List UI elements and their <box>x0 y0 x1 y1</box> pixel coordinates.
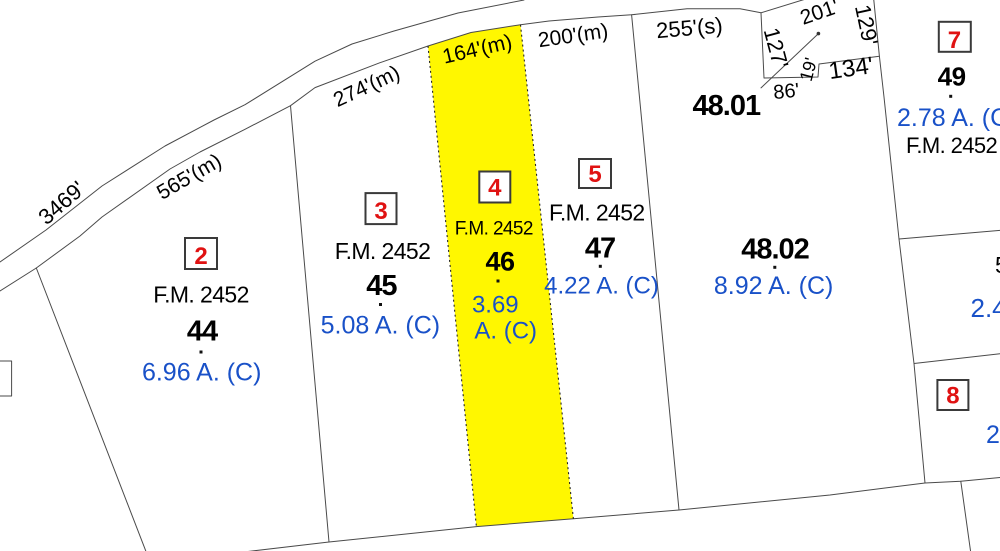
svg-text:5: 5 <box>995 252 1000 278</box>
svg-text:2.78 A. (C): 2.78 A. (C) <box>897 104 1000 132</box>
svg-text:48.01: 48.01 <box>693 90 761 122</box>
svg-text:6.96 A. (C): 6.96 A. (C) <box>142 359 262 387</box>
svg-text:F.M. 2452: F.M. 2452 <box>906 133 998 158</box>
svg-text:F.M. 2452: F.M. 2452 <box>455 218 533 239</box>
svg-text:F.M. 2452: F.M. 2452 <box>153 282 249 308</box>
svg-text:4.22 A. (C): 4.22 A. (C) <box>544 273 659 300</box>
svg-text:46: 46 <box>485 246 515 276</box>
svg-text:49: 49 <box>938 62 966 92</box>
svg-text:48.02: 48.02 <box>741 234 809 266</box>
svg-text:A. (C): A. (C) <box>474 317 537 344</box>
svg-text:2: 2 <box>986 421 1000 449</box>
svg-text:5.08 A. (C): 5.08 A. (C) <box>321 312 441 340</box>
svg-text:3: 3 <box>374 198 387 225</box>
svg-text:F.M. 2452: F.M. 2452 <box>549 200 645 226</box>
svg-text:2: 2 <box>194 243 207 270</box>
svg-text:7: 7 <box>948 27 961 54</box>
svg-text:44: 44 <box>187 316 218 348</box>
svg-text:47: 47 <box>585 233 615 265</box>
svg-text:8.92 A. (C): 8.92 A. (C) <box>714 272 834 300</box>
svg-text:F.M. 2452: F.M. 2452 <box>335 238 431 264</box>
svg-text:4: 4 <box>488 175 502 202</box>
svg-text:45: 45 <box>366 270 397 302</box>
svg-text:86': 86' <box>772 80 800 105</box>
svg-text:2.4: 2.4 <box>971 293 1000 323</box>
svg-text:5: 5 <box>588 161 601 188</box>
svg-text:8: 8 <box>946 383 959 410</box>
svg-text:3.69: 3.69 <box>472 291 519 318</box>
